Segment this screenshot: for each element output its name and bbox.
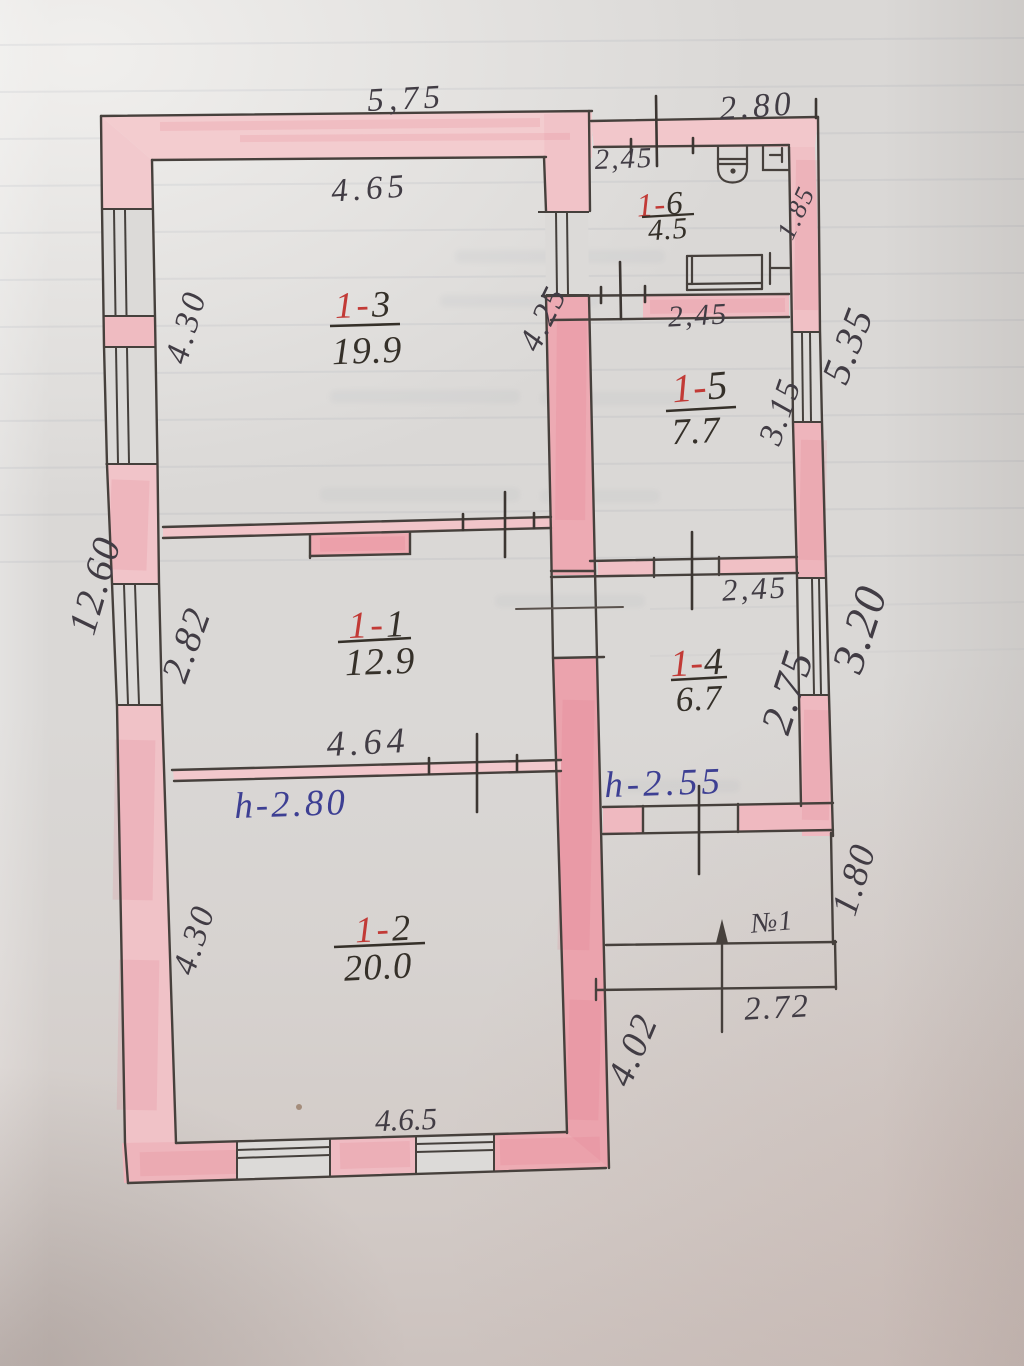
svg-text:7.7: 7.7 — [670, 410, 722, 454]
svg-text:5.35: 5.35 — [812, 301, 882, 390]
svg-text:1-3: 1-3 — [334, 284, 394, 327]
svg-text:2,45: 2,45 — [594, 142, 654, 176]
svg-text:4.30: 4.30 — [166, 900, 223, 979]
svg-text:4.5: 4.5 — [647, 212, 690, 248]
svg-text:№1: №1 — [749, 905, 795, 940]
svg-text:12.9: 12.9 — [344, 640, 416, 684]
svg-text:19.9: 19.9 — [331, 329, 403, 373]
svg-text:4.02: 4.02 — [599, 1007, 667, 1092]
svg-text:1.80: 1.80 — [824, 839, 884, 921]
svg-text:h-2.55: h-2.55 — [604, 761, 725, 806]
svg-text:2,45: 2,45 — [721, 569, 789, 607]
svg-text:4.6.5: 4.6.5 — [374, 1101, 437, 1138]
svg-text:4.64: 4.64 — [326, 720, 411, 764]
svg-text:3.20: 3.20 — [821, 578, 897, 679]
svg-text:4.65: 4.65 — [330, 168, 410, 209]
svg-text:h-2.80: h-2.80 — [234, 782, 349, 827]
svg-text:2,45: 2,45 — [667, 297, 729, 333]
svg-text:5,75: 5,75 — [366, 79, 446, 119]
svg-text:2.72: 2.72 — [743, 988, 811, 1027]
svg-text:2.82: 2.82 — [153, 601, 219, 687]
svg-text:2.80: 2.80 — [718, 85, 796, 127]
svg-text:1-5: 1-5 — [670, 362, 730, 412]
svg-text:6.7: 6.7 — [675, 678, 724, 719]
svg-text:20.0: 20.0 — [343, 945, 414, 990]
